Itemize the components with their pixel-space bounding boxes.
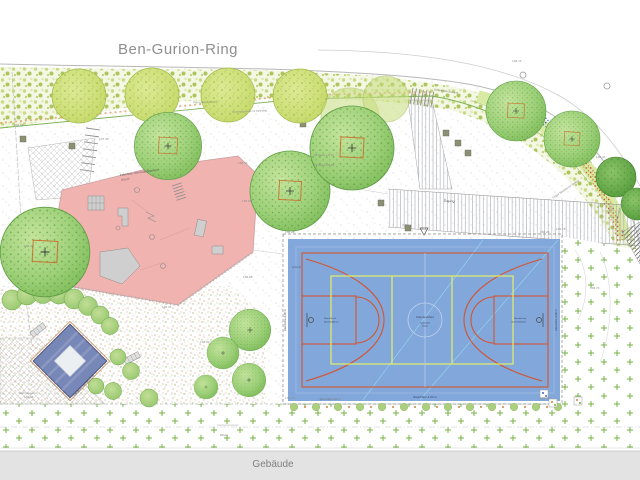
street-label: Ben-Gurion-Ring [118, 41, 238, 58]
elevation-label: 137.48 [99, 137, 109, 141]
elevation-label: 136.31 [162, 305, 172, 309]
court-hoop-right-label-1: Kleinfeld mit [514, 317, 526, 320]
elevation-label: OK Mauer 137,10 [314, 154, 334, 157]
court-fence-label-right: Zaunhöhe 4,00 m [554, 308, 558, 331]
elevation-label: 136.23 [540, 230, 550, 234]
elevation-label: 136.38 [24, 244, 34, 248]
elevation-label: 136.73 [285, 396, 295, 400]
court-hoop-right-label-2: Basketballkorb [512, 321, 527, 324]
elevation-label: 136.43 [540, 396, 550, 400]
south-fence-label: Zaunhöhe 2,00 m [319, 397, 341, 401]
elevation-label: 136.28 [57, 337, 67, 341]
building-strip [0, 451, 640, 480]
site-plan: Ben-Gurion-Ring Gebäude Pflanzung Bestan… [0, 0, 640, 480]
elevation-label: 135.74 [556, 227, 566, 231]
court-fence-label-bottom: Zaunhöhe 4,00 m [413, 395, 437, 399]
elevation-label: 136.43 [238, 161, 248, 165]
elevation-label: 136.28 [285, 230, 295, 234]
access-label: Zugang [444, 199, 455, 204]
elevation-label: 136.25 [243, 275, 253, 279]
court-fence-label-left: Zaunhöhe 4,00 m [283, 308, 287, 331]
planting-label: Pflanzung Bestand [193, 100, 217, 105]
elevation-label: OK Mauer 136,95 [314, 164, 334, 167]
elevation-label: 136.74 [590, 286, 600, 290]
neighbor-label: Nachbargrundstück [217, 424, 239, 427]
elevation-label: 136.98 [14, 123, 24, 127]
building-label: Gebäude [252, 459, 294, 470]
elevation-label: 136.28 [242, 199, 252, 203]
meadow-label: Wiese [220, 433, 229, 437]
court-hoop-left-label-1: Kleinfeld mit [324, 317, 336, 320]
elevation-label: 136.30 [200, 340, 210, 344]
court-hoop-left-label-2: Basketballkorb [324, 321, 339, 324]
elevation-label: 136.74 [512, 59, 522, 63]
elevation-label: 2,5% [402, 223, 410, 227]
earth-wall-label: Erdwall [292, 265, 301, 269]
elevation-label: 136.26 [24, 395, 34, 399]
site-plan-drawing: Ben-Gurion-Ring Gebäude Pflanzung Bestan… [0, 0, 640, 480]
court-center-label: Kleinspielfeld [416, 315, 434, 319]
elevation-label: 136.44 [596, 155, 606, 159]
